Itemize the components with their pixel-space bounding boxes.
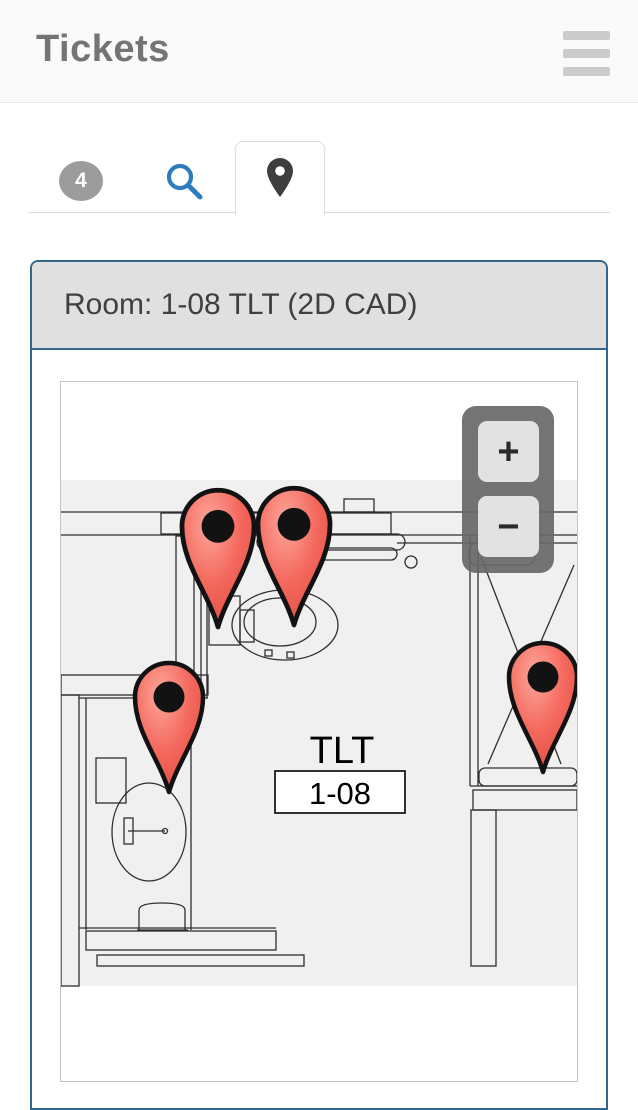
- room-number: 1-08: [309, 776, 371, 811]
- tab-bar: 4: [0, 141, 638, 216]
- hamburger-menu-icon: [563, 49, 610, 58]
- tab-ticket-list[interactable]: 4: [59, 161, 103, 201]
- room-panel: Room: 1-08 TLT (2D CAD): [30, 260, 608, 1110]
- search-icon: [163, 160, 205, 202]
- tab-search[interactable]: [163, 160, 205, 202]
- location-pin-icon: [264, 158, 296, 200]
- ticket-count-badge: 4: [75, 169, 87, 193]
- zoom-in-button[interactable]: +: [478, 421, 539, 482]
- hamburger-menu-icon: [563, 67, 610, 76]
- panel-body: TLT 1-08 +: [32, 350, 606, 1082]
- panel-title: Room: 1-08 TLT (2D CAD): [32, 288, 417, 322]
- page-title: Tickets: [36, 28, 170, 71]
- tab-map-active[interactable]: [235, 141, 325, 215]
- room-label: TLT: [310, 730, 375, 772]
- hamburger-menu-icon: [563, 31, 610, 40]
- hamburger-menu-button[interactable]: [563, 31, 610, 76]
- app-header: Tickets: [0, 0, 638, 103]
- panel-header[interactable]: Room: 1-08 TLT (2D CAD): [32, 262, 606, 350]
- zoom-controls: + −: [462, 406, 554, 573]
- floorplan-map[interactable]: TLT 1-08 +: [60, 381, 578, 1082]
- zoom-out-button[interactable]: −: [478, 496, 539, 557]
